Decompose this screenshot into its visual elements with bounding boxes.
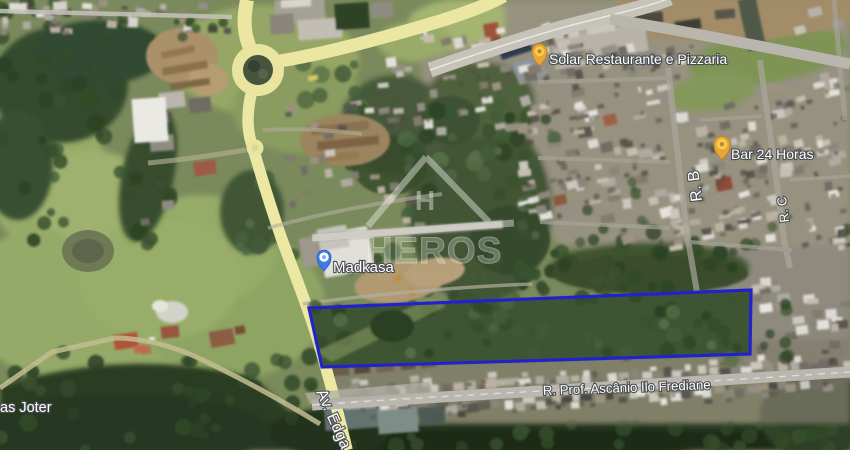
svg-text:INVESTIMENTOS: INVESTIMENTOS bbox=[378, 271, 490, 281]
svg-text:H: H bbox=[415, 185, 435, 216]
svg-text:Solar Restaurante e Pizzaria: Solar Restaurante e Pizzaria bbox=[549, 51, 727, 67]
svg-text:as Joter: as Joter bbox=[0, 400, 52, 416]
svg-text:Madkasa: Madkasa bbox=[333, 259, 395, 276]
svg-text:Bar 24 Horas: Bar 24 Horas bbox=[731, 146, 813, 162]
svg-text:R. C: R. C bbox=[774, 196, 792, 224]
